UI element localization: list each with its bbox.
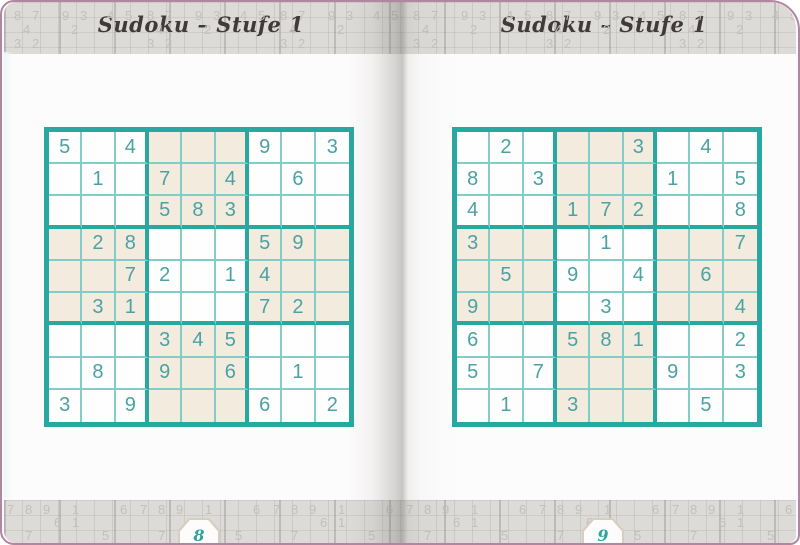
sudoku-cell: 4 bbox=[624, 261, 657, 293]
pattern-number: 5 bbox=[657, 9, 664, 22]
sudoku-cell bbox=[82, 325, 115, 357]
pattern-number: 4 bbox=[422, 23, 429, 36]
sudoku-cell: 9 bbox=[457, 293, 490, 325]
sudoku-cell: 9 bbox=[149, 358, 182, 390]
pattern-number: 6 bbox=[120, 503, 127, 516]
pattern-number: 4 bbox=[156, 23, 163, 36]
sudoku-cell: 8 bbox=[457, 164, 490, 196]
sudoku-cell bbox=[590, 132, 623, 164]
sudoku-cell: 8 bbox=[182, 196, 215, 228]
pattern-number: 7 bbox=[424, 529, 431, 542]
top-band-pattern: Sudoku – Stufe 1 Sudoku – Stufe 1 879345… bbox=[4, 2, 796, 54]
page-number-left: 8 bbox=[193, 523, 204, 545]
pattern-number: 8 bbox=[424, 503, 431, 516]
pattern-number: 8 bbox=[690, 503, 697, 516]
sudoku-cell bbox=[690, 229, 723, 261]
pattern-number: 5 bbox=[790, 9, 796, 22]
sudoku-cell: 5 bbox=[557, 325, 590, 357]
pattern-number: 7 bbox=[7, 503, 14, 516]
pattern-number: 5 bbox=[125, 9, 132, 22]
pattern-number: 2 bbox=[736, 23, 743, 36]
sudoku-cell bbox=[182, 390, 215, 422]
pattern-number: 4 bbox=[772, 9, 779, 22]
page-gutter-shadow bbox=[347, 2, 462, 543]
pattern-number: 3 bbox=[213, 9, 220, 22]
sudoku-cell bbox=[316, 358, 349, 390]
sudoku-cell bbox=[624, 293, 657, 325]
sudoku-cell: 9 bbox=[657, 358, 690, 390]
sudoku-cell bbox=[149, 132, 182, 164]
sudoku-cell: 6 bbox=[690, 261, 723, 293]
pattern-number: 6 bbox=[386, 503, 393, 516]
sudoku-cell bbox=[657, 293, 690, 325]
sudoku-cell bbox=[249, 196, 282, 228]
pattern-number: 3 bbox=[346, 9, 353, 22]
sudoku-cell bbox=[490, 293, 523, 325]
pattern-number: 8 bbox=[679, 9, 686, 22]
sudoku-cell bbox=[624, 358, 657, 390]
pattern-number: 2 bbox=[71, 23, 78, 36]
sudoku-cell: 9 bbox=[557, 261, 590, 293]
sudoku-cell: 7 bbox=[524, 358, 557, 390]
pattern-number: 2 bbox=[564, 37, 571, 50]
pattern-number: 4 bbox=[289, 23, 296, 36]
pattern-number: 8 bbox=[280, 9, 287, 22]
sudoku-cell bbox=[149, 293, 182, 325]
pattern-number: 2 bbox=[431, 37, 438, 50]
sudoku-cell bbox=[457, 261, 490, 293]
pattern-number: 5 bbox=[235, 529, 242, 542]
pattern-number: 7 bbox=[140, 503, 147, 516]
pattern-number: 4 bbox=[23, 23, 30, 36]
sudoku-cell: 1 bbox=[657, 164, 690, 196]
pattern-number: 7 bbox=[564, 9, 571, 22]
sudoku-cell bbox=[282, 196, 315, 228]
pattern-number: 6 bbox=[320, 516, 327, 529]
sudoku-cell bbox=[557, 164, 590, 196]
sudoku-cell bbox=[116, 358, 149, 390]
pattern-number: 8 bbox=[557, 503, 564, 516]
sudoku-cell: 3 bbox=[590, 293, 623, 325]
sudoku-cell: 4 bbox=[724, 293, 757, 325]
sudoku-cell: 2 bbox=[282, 293, 315, 325]
sudoku-cell: 3 bbox=[149, 325, 182, 357]
sudoku-cell bbox=[316, 325, 349, 357]
sudoku-cell: 1 bbox=[82, 164, 115, 196]
sudoku-cell bbox=[524, 132, 557, 164]
pattern-number: 7 bbox=[539, 503, 546, 516]
pattern-number: 1 bbox=[471, 516, 478, 529]
pattern-number: 3 bbox=[14, 37, 21, 50]
pattern-number: 5 bbox=[258, 9, 265, 22]
sudoku-cell bbox=[116, 164, 149, 196]
pattern-number: 7 bbox=[672, 503, 679, 516]
sudoku-cell bbox=[657, 132, 690, 164]
sudoku-cell bbox=[557, 229, 590, 261]
sudoku-cell: 1 bbox=[624, 325, 657, 357]
pattern-number: 6 bbox=[253, 503, 260, 516]
sudoku-cell bbox=[82, 390, 115, 422]
sudoku-cell bbox=[457, 132, 490, 164]
sudoku-cell: 2 bbox=[490, 132, 523, 164]
sudoku-cell: 6 bbox=[282, 164, 315, 196]
sudoku-cell bbox=[316, 164, 349, 196]
sudoku-cell bbox=[690, 325, 723, 357]
sudoku-cell: 8 bbox=[590, 325, 623, 357]
sudoku-cell: 2 bbox=[624, 196, 657, 228]
pattern-number: 5 bbox=[102, 529, 109, 542]
sudoku-cell: 2 bbox=[724, 325, 757, 357]
pattern-number: 3 bbox=[147, 37, 154, 50]
sudoku-cell bbox=[182, 164, 215, 196]
sudoku-cell bbox=[216, 390, 249, 422]
pattern-number: 9 bbox=[594, 9, 601, 22]
book-spread: Sudoku – Stufe 1 Sudoku – Stufe 1 879345… bbox=[0, 0, 800, 545]
sudoku-cell bbox=[557, 358, 590, 390]
pattern-number: 3 bbox=[479, 9, 486, 22]
sudoku-cell: 8 bbox=[116, 229, 149, 261]
pattern-number: 9 bbox=[176, 503, 183, 516]
sudoku-cell bbox=[490, 325, 523, 357]
pattern-number: 6 bbox=[453, 516, 460, 529]
sudoku-cell: 3 bbox=[557, 390, 590, 422]
sudoku-cell bbox=[657, 261, 690, 293]
sudoku-cell bbox=[657, 196, 690, 228]
pattern-number: 8 bbox=[413, 9, 420, 22]
sudoku-cell bbox=[249, 325, 282, 357]
pattern-number: 4 bbox=[688, 23, 695, 36]
sudoku-cell: 3 bbox=[624, 132, 657, 164]
pattern-number: 9 bbox=[309, 503, 316, 516]
sudoku-cell bbox=[182, 132, 215, 164]
sudoku-cell: 2 bbox=[149, 261, 182, 293]
sudoku-cell: 8 bbox=[724, 196, 757, 228]
sudoku-cell bbox=[690, 196, 723, 228]
sudoku-cell: 6 bbox=[457, 325, 490, 357]
pattern-number: 4 bbox=[506, 9, 513, 22]
sudoku-grid-left: 5493174658328597214317234589613962 bbox=[44, 127, 354, 427]
pattern-number: 9 bbox=[461, 9, 468, 22]
sudoku-cell: 4 bbox=[116, 132, 149, 164]
sudoku-cell bbox=[490, 229, 523, 261]
sudoku-cell: 5 bbox=[457, 358, 490, 390]
pattern-number: 7 bbox=[406, 503, 413, 516]
sudoku-cell bbox=[590, 164, 623, 196]
sudoku-cell bbox=[524, 229, 557, 261]
sudoku-cell: 3 bbox=[457, 229, 490, 261]
pattern-number: 7 bbox=[32, 9, 39, 22]
sudoku-cell: 7 bbox=[116, 261, 149, 293]
sudoku-cell bbox=[624, 390, 657, 422]
sudoku-cell bbox=[182, 293, 215, 325]
pattern-number: 3 bbox=[80, 9, 87, 22]
pattern-number: 5 bbox=[501, 529, 508, 542]
pattern-number: 7 bbox=[557, 529, 564, 542]
sudoku-cell bbox=[216, 229, 249, 261]
sudoku-cell bbox=[49, 164, 82, 196]
sudoku-cell bbox=[49, 229, 82, 261]
pattern-number: 5 bbox=[634, 529, 641, 542]
sudoku-cell: 4 bbox=[216, 164, 249, 196]
pattern-number: 4 bbox=[639, 9, 646, 22]
sudoku-cell bbox=[49, 196, 82, 228]
pattern-number: 9 bbox=[43, 503, 50, 516]
pattern-number: 8 bbox=[147, 9, 154, 22]
sudoku-cell: 5 bbox=[149, 196, 182, 228]
pattern-number: 7 bbox=[431, 9, 438, 22]
sudoku-cell: 2 bbox=[316, 390, 349, 422]
sudoku-cell bbox=[690, 164, 723, 196]
sudoku-cell bbox=[49, 358, 82, 390]
sudoku-cell bbox=[657, 390, 690, 422]
pattern-number: 6 bbox=[54, 516, 61, 529]
sudoku-cell: 3 bbox=[216, 196, 249, 228]
pattern-number: 9 bbox=[442, 503, 449, 516]
sudoku-cell: 1 bbox=[282, 358, 315, 390]
pattern-number: 8 bbox=[14, 9, 21, 22]
sudoku-cell bbox=[490, 164, 523, 196]
sudoku-cell: 5 bbox=[49, 132, 82, 164]
pattern-number: 7 bbox=[158, 529, 165, 542]
sudoku-cell bbox=[149, 229, 182, 261]
pattern-number: 7 bbox=[25, 529, 32, 542]
sudoku-cell: 9 bbox=[249, 132, 282, 164]
sudoku-cell: 3 bbox=[724, 358, 757, 390]
sudoku-cell: 5 bbox=[724, 164, 757, 196]
sudoku-cell: 3 bbox=[316, 132, 349, 164]
sudoku-cell bbox=[249, 164, 282, 196]
pattern-number: 5 bbox=[368, 529, 375, 542]
pattern-number: 7 bbox=[298, 9, 305, 22]
sudoku-cell bbox=[316, 229, 349, 261]
page-number-tab-right-inner: 9 bbox=[584, 520, 622, 545]
sudoku-cell: 6 bbox=[249, 390, 282, 422]
page-edge-highlight bbox=[4, 52, 13, 498]
sudoku-cell bbox=[557, 293, 590, 325]
sudoku-cell bbox=[557, 132, 590, 164]
sudoku-cell bbox=[282, 132, 315, 164]
sudoku-cell: 3 bbox=[49, 390, 82, 422]
sudoku-cell bbox=[182, 358, 215, 390]
sudoku-cell bbox=[690, 358, 723, 390]
sudoku-cell bbox=[82, 132, 115, 164]
sudoku-cell: 7 bbox=[249, 293, 282, 325]
sudoku-cell: 7 bbox=[149, 164, 182, 196]
sudoku-cell bbox=[282, 390, 315, 422]
sudoku-cell bbox=[182, 229, 215, 261]
sudoku-cell bbox=[724, 132, 757, 164]
sudoku-cell: 9 bbox=[116, 390, 149, 422]
sudoku-cell bbox=[182, 261, 215, 293]
sudoku-cell bbox=[316, 196, 349, 228]
sudoku-cell: 7 bbox=[724, 229, 757, 261]
sudoku-cell: 1 bbox=[490, 390, 523, 422]
sudoku-cell bbox=[216, 132, 249, 164]
sudoku-cell: 1 bbox=[216, 261, 249, 293]
sudoku-cell: 3 bbox=[524, 164, 557, 196]
sudoku-cell bbox=[524, 325, 557, 357]
pattern-number: 4 bbox=[373, 9, 380, 22]
sudoku-cell bbox=[690, 293, 723, 325]
sudoku-cell bbox=[82, 196, 115, 228]
sudoku-cell bbox=[590, 390, 623, 422]
sudoku-cell: 9 bbox=[282, 229, 315, 261]
sudoku-cell: 5 bbox=[216, 325, 249, 357]
pattern-number: 3 bbox=[679, 37, 686, 50]
sudoku-cell bbox=[524, 261, 557, 293]
sudoku-cell: 2 bbox=[82, 229, 115, 261]
sudoku-cell bbox=[524, 196, 557, 228]
pattern-number: 8 bbox=[25, 503, 32, 516]
pattern-number: 7 bbox=[690, 529, 697, 542]
pattern-number: 8 bbox=[546, 9, 553, 22]
sudoku-cell bbox=[490, 358, 523, 390]
pattern-number: 2 bbox=[32, 37, 39, 50]
pattern-number: 5 bbox=[524, 9, 531, 22]
pattern-number: 4 bbox=[107, 9, 114, 22]
page-number-tab-left-inner: 8 bbox=[180, 520, 218, 545]
sudoku-cell bbox=[216, 293, 249, 325]
sudoku-cell bbox=[282, 261, 315, 293]
pattern-number: 7 bbox=[273, 503, 280, 516]
pattern-number: 9 bbox=[727, 9, 734, 22]
sudoku-cell bbox=[590, 261, 623, 293]
sudoku-cell bbox=[249, 358, 282, 390]
sudoku-cell bbox=[524, 390, 557, 422]
sudoku-cell bbox=[316, 261, 349, 293]
sudoku-cell: 1 bbox=[557, 196, 590, 228]
pattern-number: 3 bbox=[546, 37, 553, 50]
sudoku-cell: 6 bbox=[216, 358, 249, 390]
sudoku-cell bbox=[590, 358, 623, 390]
pattern-number: 1 bbox=[338, 516, 345, 529]
pattern-number: 7 bbox=[291, 529, 298, 542]
pattern-number: 9 bbox=[62, 9, 69, 22]
bottom-band-pattern: 7891661757891661757891661757891661757891… bbox=[4, 500, 796, 543]
sudoku-cell: 4 bbox=[249, 261, 282, 293]
sudoku-cell bbox=[524, 293, 557, 325]
sudoku-cell bbox=[724, 261, 757, 293]
pattern-number: 6 bbox=[719, 516, 726, 529]
pattern-number: 2 bbox=[165, 37, 172, 50]
sudoku-cell bbox=[316, 293, 349, 325]
sudoku-cell bbox=[116, 325, 149, 357]
pattern-number: 6 bbox=[785, 503, 792, 516]
sudoku-cell: 5 bbox=[249, 229, 282, 261]
page-number-right: 9 bbox=[597, 523, 608, 545]
sudoku-cell: 8 bbox=[82, 358, 115, 390]
pattern-number: 2 bbox=[298, 37, 305, 50]
sudoku-cell bbox=[490, 196, 523, 228]
pattern-number: 6 bbox=[519, 503, 526, 516]
sudoku-cell: 1 bbox=[590, 229, 623, 261]
sudoku-cell bbox=[116, 196, 149, 228]
sudoku-cell bbox=[624, 229, 657, 261]
pattern-number: 3 bbox=[612, 9, 619, 22]
pattern-number: 4 bbox=[555, 23, 562, 36]
pattern-number: 2 bbox=[337, 23, 344, 36]
sudoku-cell: 7 bbox=[590, 196, 623, 228]
sudoku-cell bbox=[657, 229, 690, 261]
pattern-number: 3 bbox=[413, 37, 420, 50]
sudoku-cell bbox=[82, 261, 115, 293]
sudoku-cell bbox=[49, 325, 82, 357]
sudoku-cell bbox=[657, 325, 690, 357]
pattern-number: 5 bbox=[391, 9, 398, 22]
pattern-number: 5 bbox=[767, 529, 774, 542]
pattern-number: 7 bbox=[697, 9, 704, 22]
sudoku-cell: 3 bbox=[82, 293, 115, 325]
sudoku-cell bbox=[457, 390, 490, 422]
sudoku-cell: 4 bbox=[690, 132, 723, 164]
pattern-number: 2 bbox=[697, 37, 704, 50]
pattern-number: 6 bbox=[652, 503, 659, 516]
sudoku-cell bbox=[149, 390, 182, 422]
pattern-number: 3 bbox=[745, 9, 752, 22]
sudoku-cell bbox=[49, 261, 82, 293]
sudoku-cell: 5 bbox=[690, 390, 723, 422]
pattern-number: 9 bbox=[575, 503, 582, 516]
pattern-number: 9 bbox=[328, 9, 335, 22]
sudoku-cell: 1 bbox=[116, 293, 149, 325]
pattern-number: 2 bbox=[603, 23, 610, 36]
sudoku-cell bbox=[282, 325, 315, 357]
pattern-number: 9 bbox=[195, 9, 202, 22]
sudoku-cell: 4 bbox=[457, 196, 490, 228]
pattern-number: 7 bbox=[165, 9, 172, 22]
pattern-number: 2 bbox=[470, 23, 477, 36]
pattern-number: 3 bbox=[280, 37, 287, 50]
pattern-number: 8 bbox=[291, 503, 298, 516]
sudoku-cell bbox=[49, 293, 82, 325]
pattern-number: 8 bbox=[158, 503, 165, 516]
sudoku-cell bbox=[724, 390, 757, 422]
pattern-number: 4 bbox=[240, 9, 247, 22]
pattern-number: 1 bbox=[737, 516, 744, 529]
pattern-number: 9 bbox=[708, 503, 715, 516]
pattern-number: 2 bbox=[204, 23, 211, 36]
sudoku-cell: 5 bbox=[490, 261, 523, 293]
sudoku-grid-right: 2348315417283175946934658125793135 bbox=[452, 127, 762, 427]
pattern-number: 1 bbox=[72, 516, 79, 529]
sudoku-cell bbox=[624, 164, 657, 196]
sudoku-cell: 4 bbox=[182, 325, 215, 357]
